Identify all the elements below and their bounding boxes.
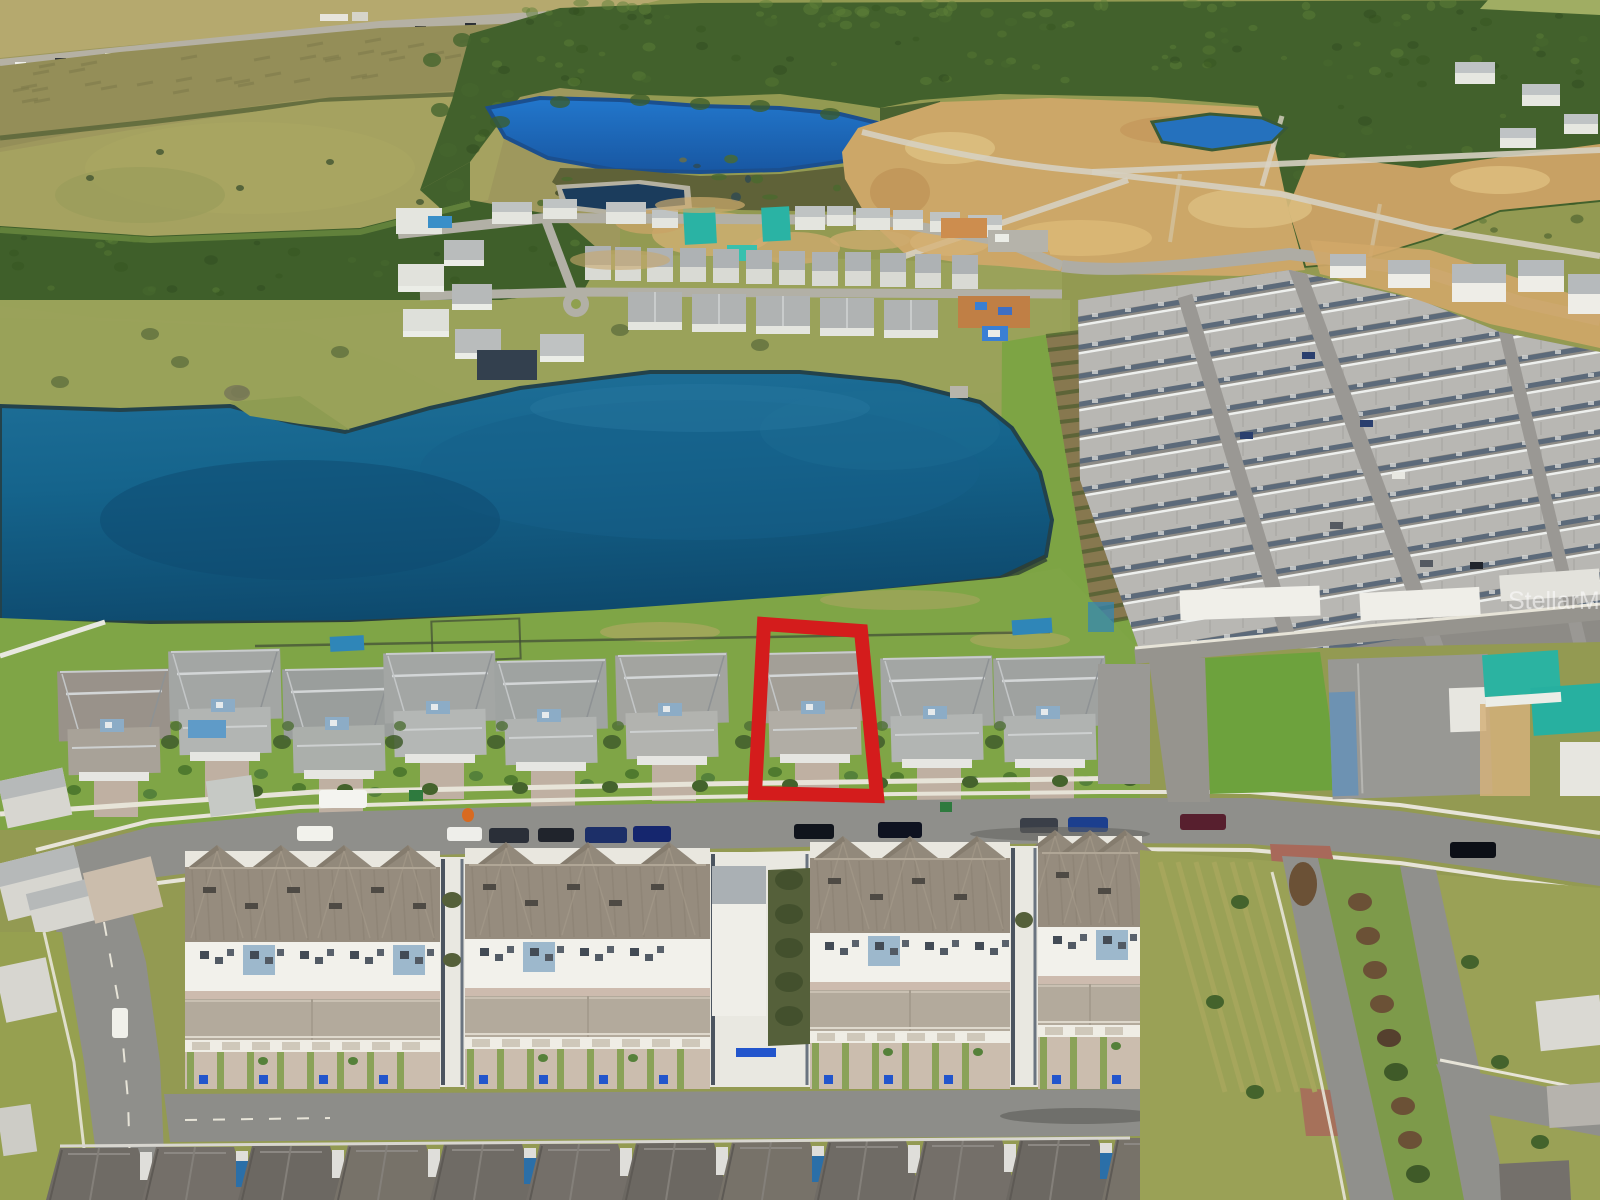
svg-text:StellarMLS: StellarMLS — [1508, 587, 1600, 615]
